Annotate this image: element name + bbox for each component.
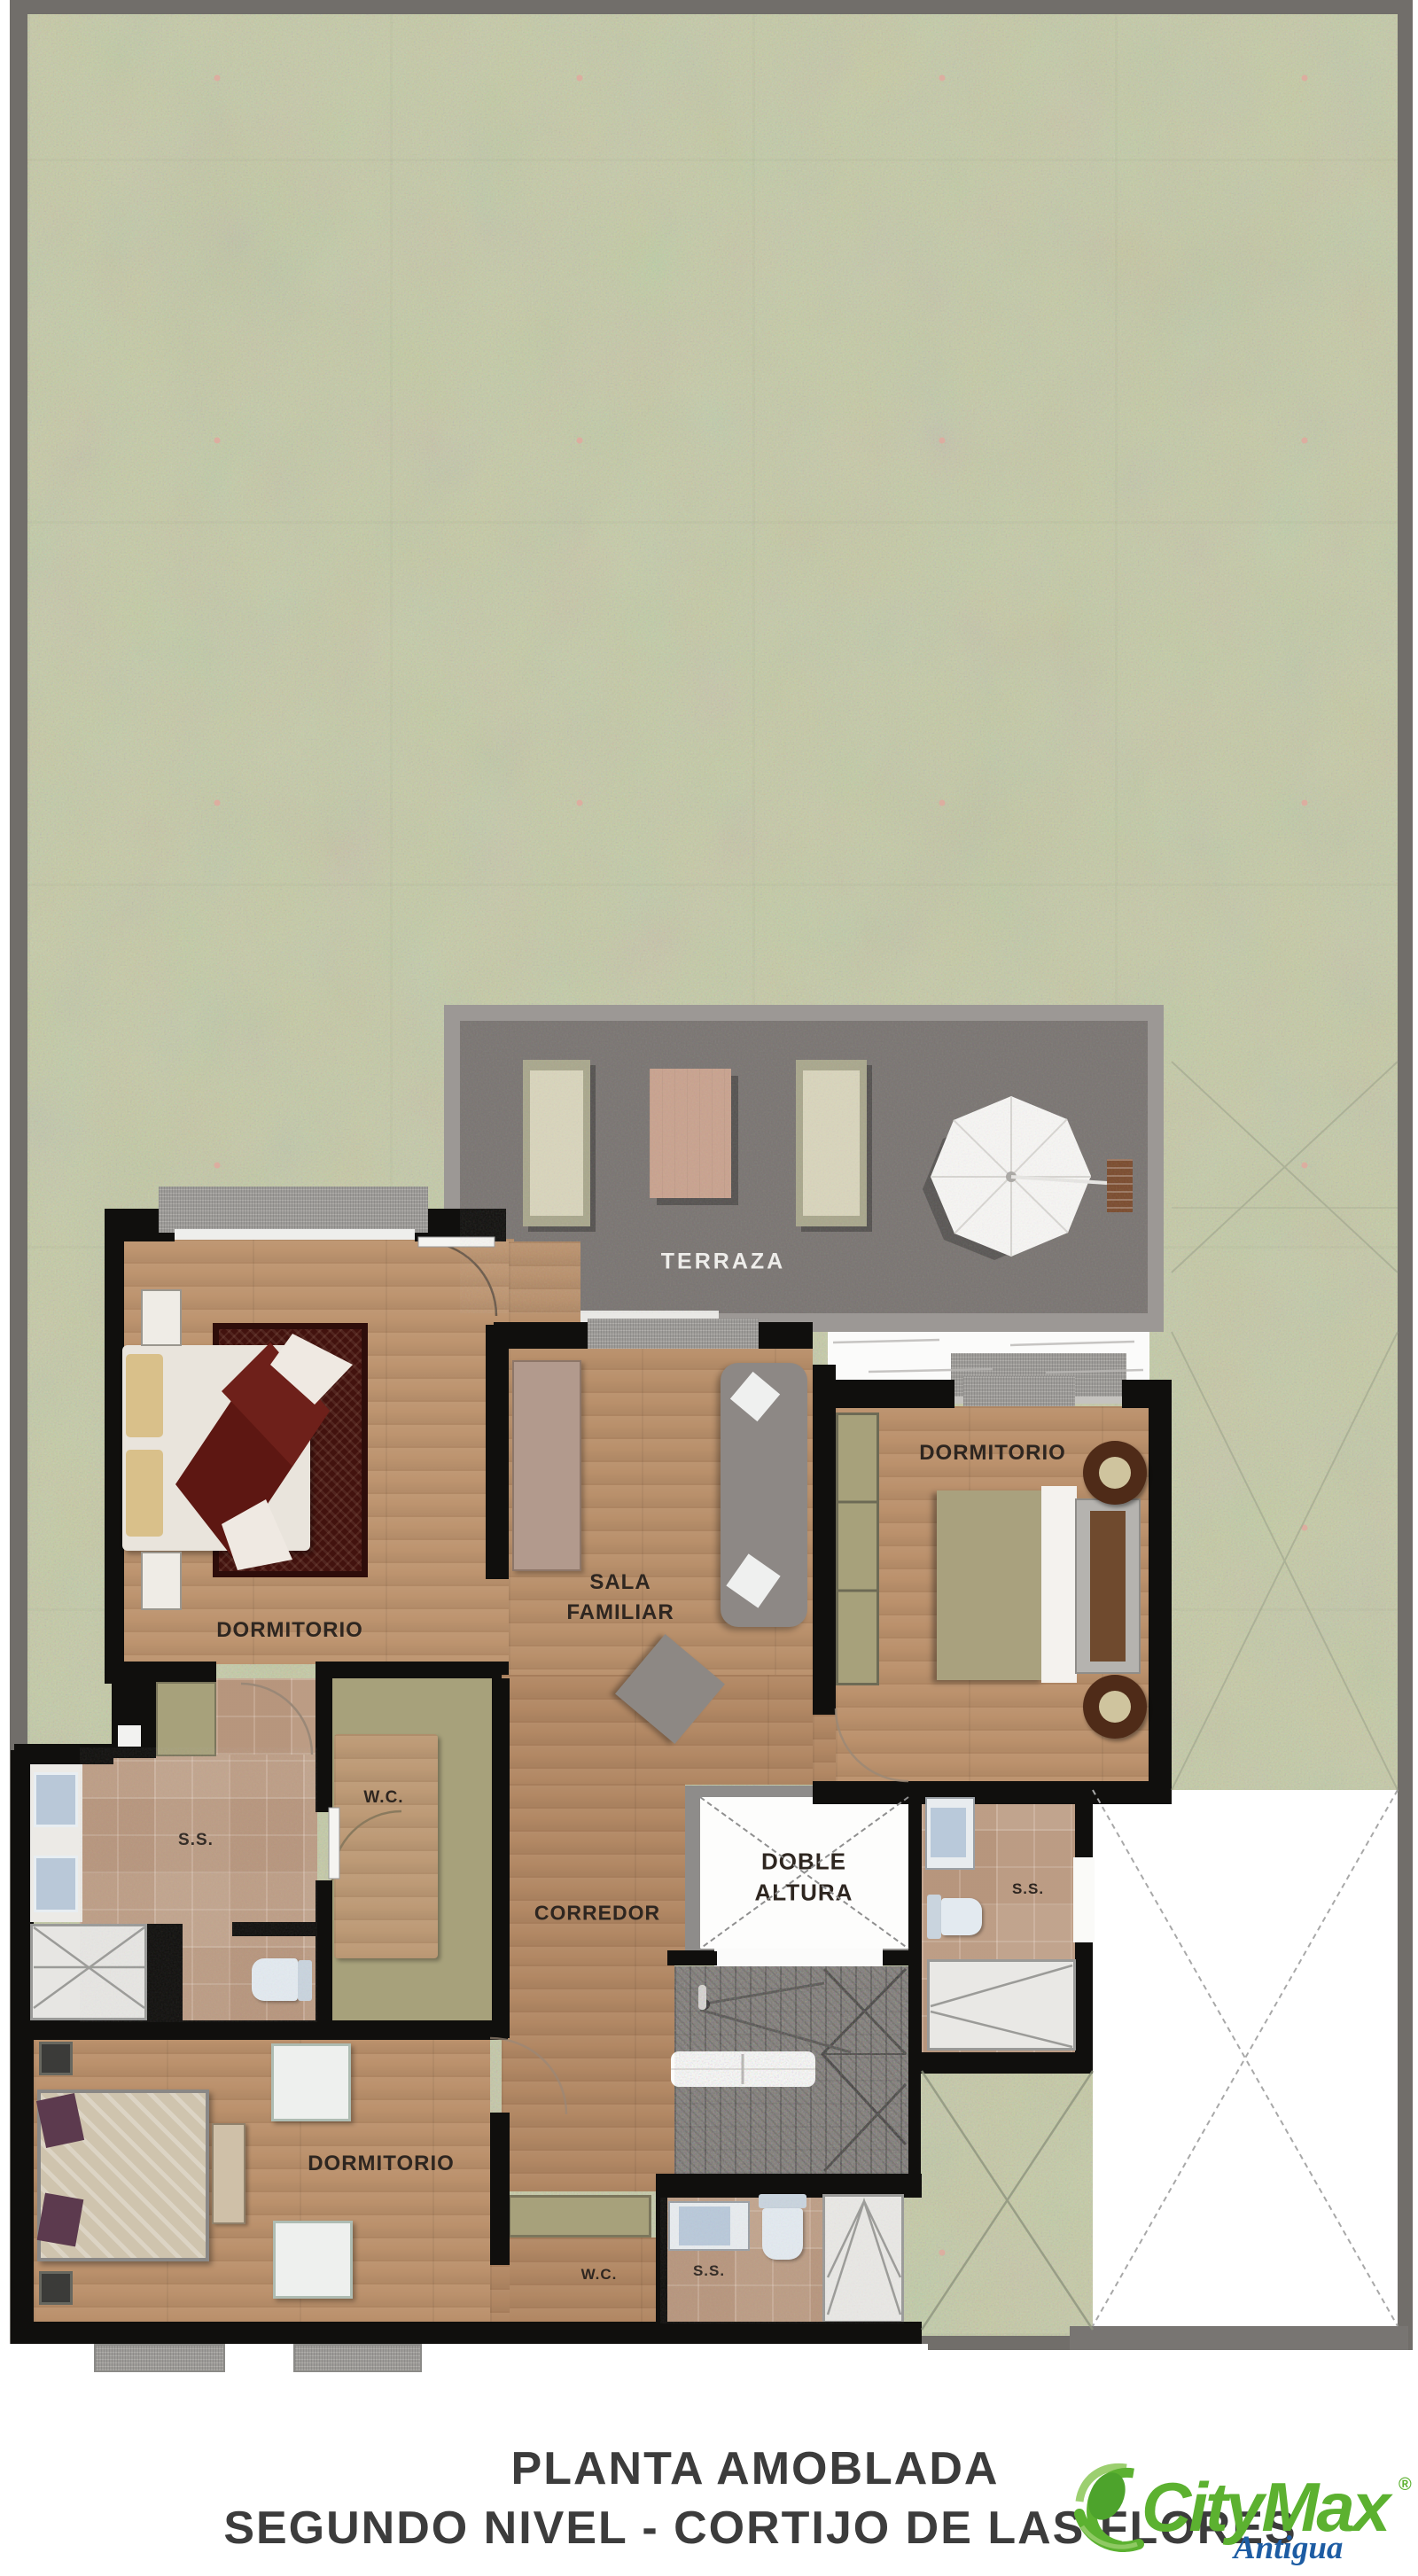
svg-text:Antigua: Antigua bbox=[1232, 2530, 1343, 2566]
svg-text:®: ® bbox=[1399, 2475, 1412, 2494]
